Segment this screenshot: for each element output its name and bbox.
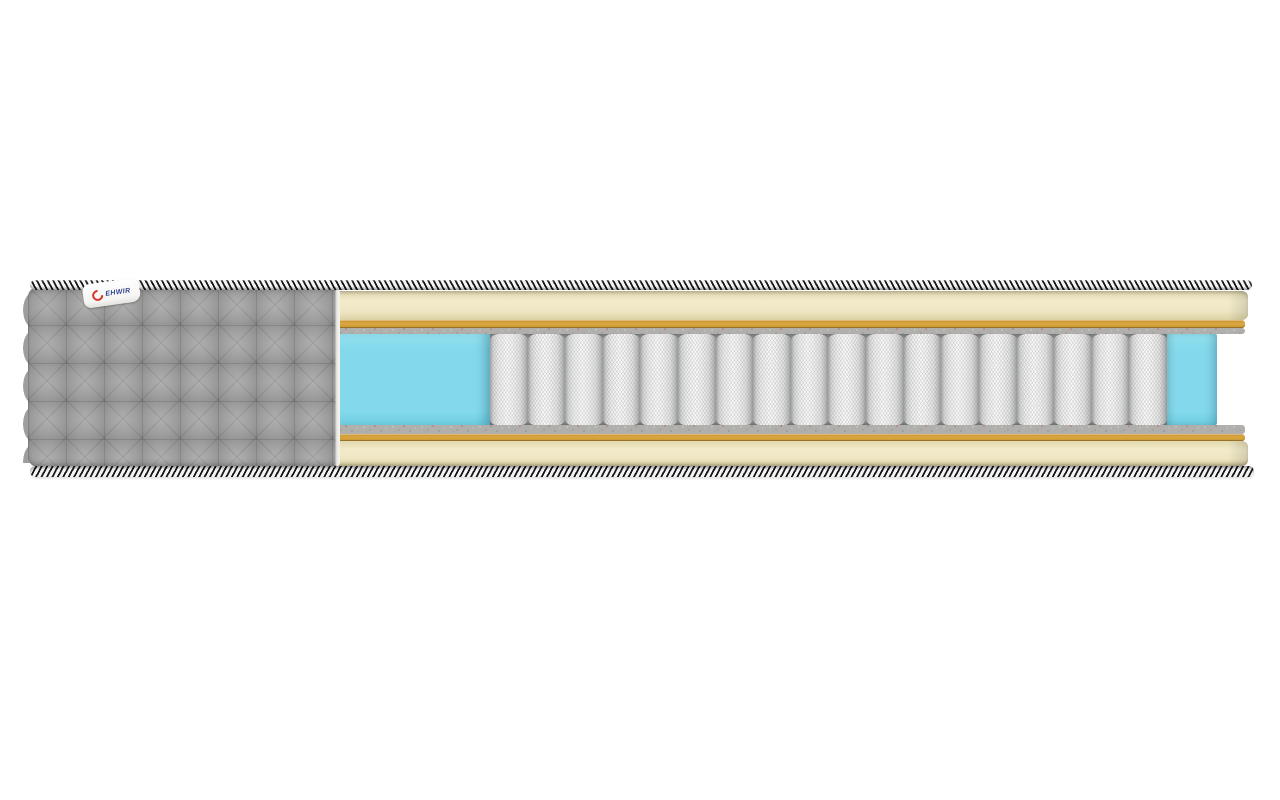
spring-coil (678, 334, 716, 425)
spring-coil (565, 334, 603, 425)
bottom-foam-layer (332, 441, 1248, 466)
product-image: EHWIR (0, 0, 1280, 800)
bottom-gold-layer (332, 434, 1245, 441)
top-foam-layer (332, 291, 1248, 320)
right-foam-block (1167, 334, 1217, 425)
quilted-cover (28, 287, 337, 467)
top-edge-piping (30, 280, 1252, 290)
pocket-springs (490, 334, 1167, 425)
spring-coil (1054, 334, 1092, 425)
spring-coil (1129, 334, 1167, 425)
spring-coil (640, 334, 678, 425)
spring-coil (603, 334, 641, 425)
spring-coil (866, 334, 904, 425)
spring-coil (716, 334, 754, 425)
spring-coil (490, 334, 528, 425)
spring-coil (791, 334, 829, 425)
top-gold-layer (332, 320, 1245, 328)
bottom-edge-piping (30, 466, 1254, 477)
spring-coil (828, 334, 866, 425)
spring-coil (979, 334, 1017, 425)
spring-coil (1092, 334, 1130, 425)
spring-coil (753, 334, 791, 425)
brand-logo-icon (90, 287, 106, 303)
spring-coil (941, 334, 979, 425)
bottom-felt-layer (332, 425, 1245, 434)
spring-coil (528, 334, 566, 425)
cover-cut-edge (334, 290, 340, 466)
left-foam-block (333, 334, 490, 425)
spring-coil (1017, 334, 1055, 425)
brand-tag-label: EHWIR (105, 287, 131, 297)
spring-coil (904, 334, 942, 425)
